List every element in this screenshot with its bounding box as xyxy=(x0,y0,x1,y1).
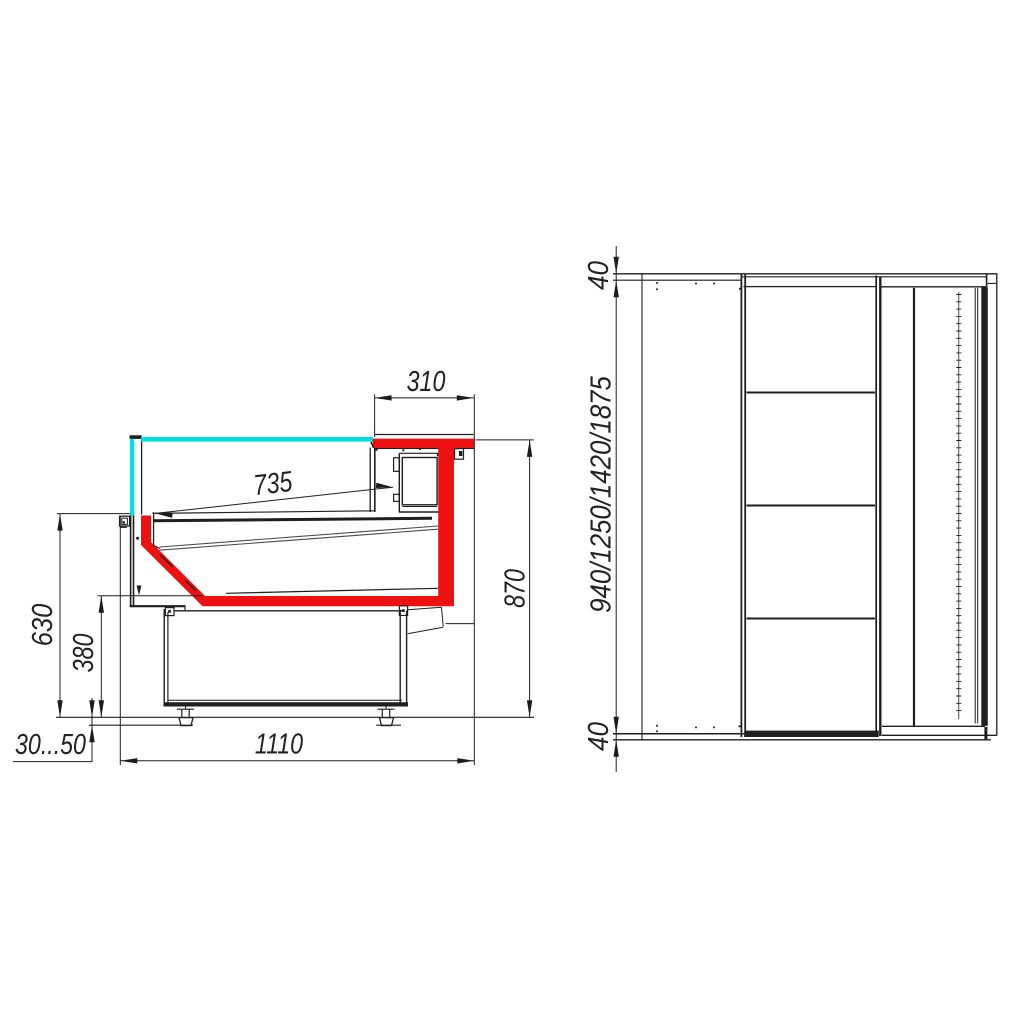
svg-text:940/1250/1420/1875: 940/1250/1420/1875 xyxy=(584,375,617,612)
svg-text:870: 870 xyxy=(498,569,531,608)
svg-text:630: 630 xyxy=(25,604,58,647)
svg-text:735: 735 xyxy=(252,464,295,501)
svg-text:310: 310 xyxy=(407,364,446,397)
svg-text:1110: 1110 xyxy=(255,727,304,760)
svg-text:40: 40 xyxy=(582,260,615,290)
svg-text:380: 380 xyxy=(66,633,99,672)
svg-text:40: 40 xyxy=(582,721,615,751)
svg-text:30...50: 30...50 xyxy=(15,727,86,760)
